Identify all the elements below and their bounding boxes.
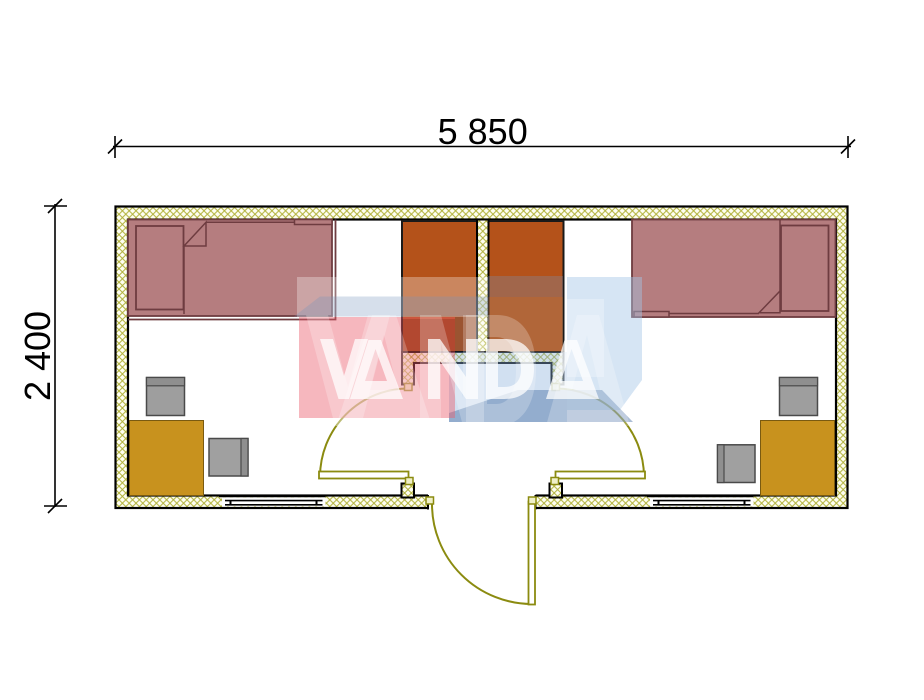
svg-text:2 400: 2 400: [17, 311, 58, 401]
svg-text:5 850: 5 850: [438, 111, 528, 152]
